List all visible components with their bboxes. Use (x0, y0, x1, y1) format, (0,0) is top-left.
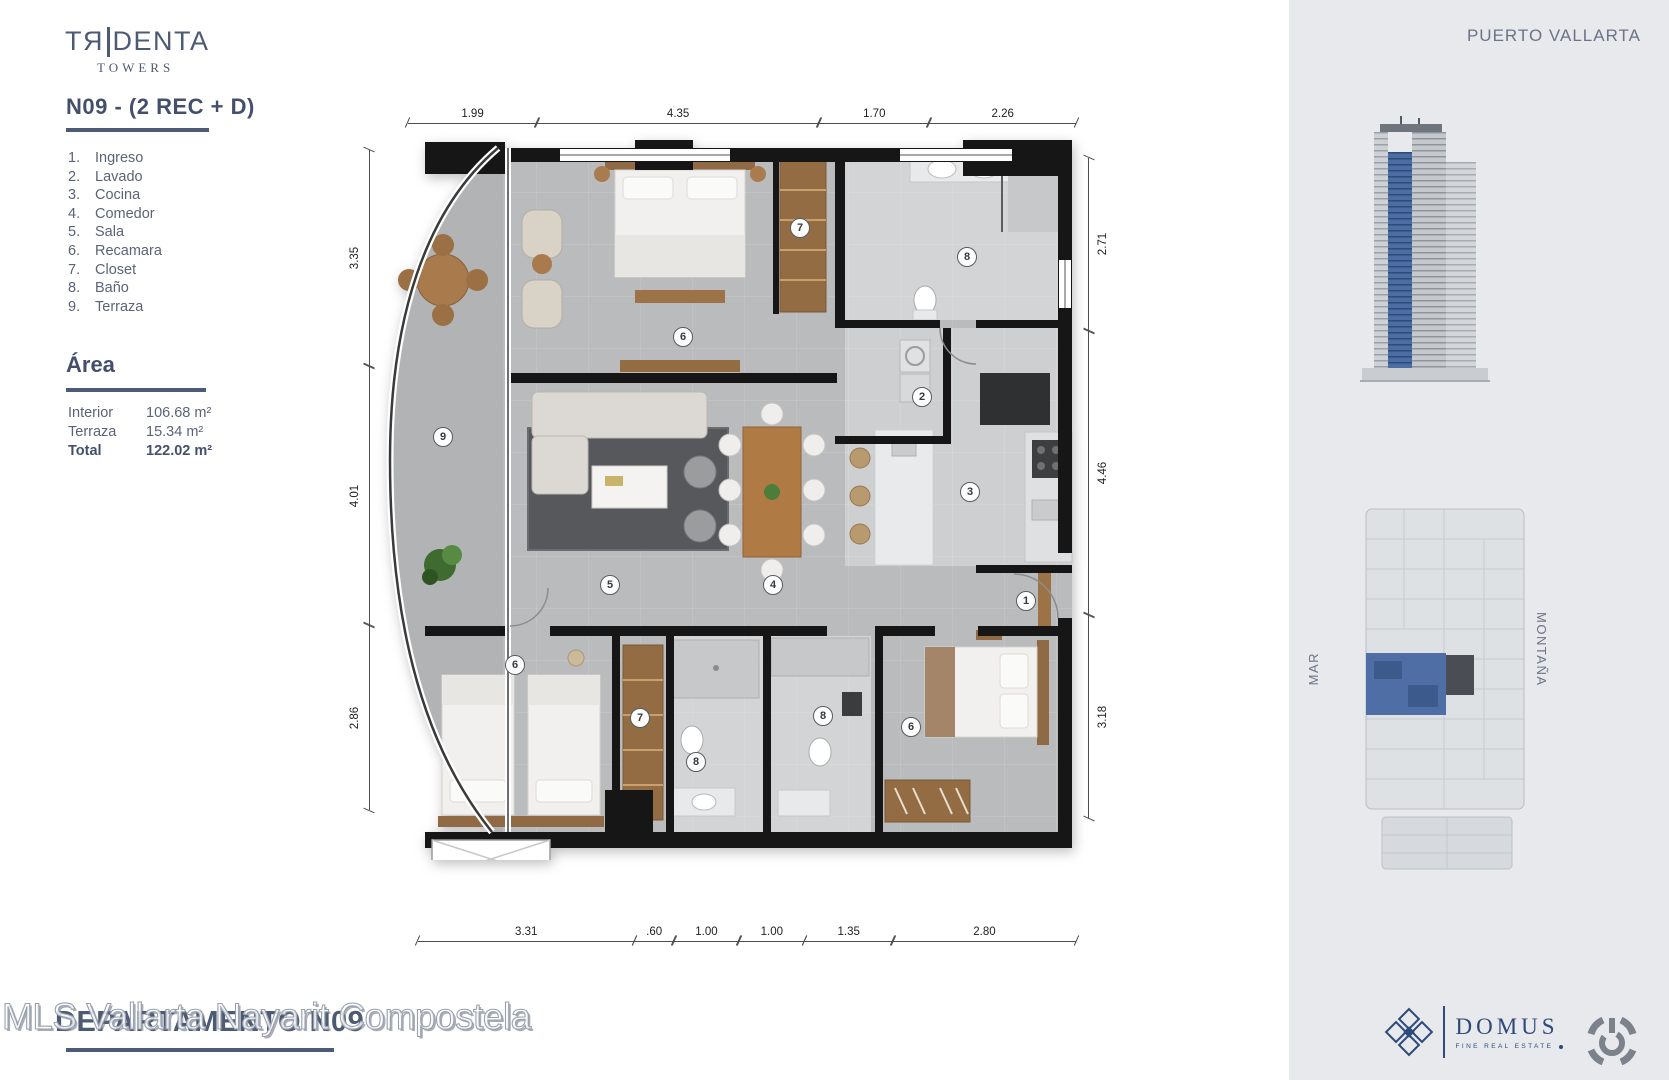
room-marker: 9 (433, 427, 453, 447)
tower-wing-right (1446, 162, 1476, 368)
area-row: Terraza15.34 m² (68, 423, 212, 442)
orientation-sea-label: MAR (1306, 652, 1321, 685)
dimension-segment: 2.26 (929, 106, 1076, 124)
dimension-segment: 1.70 (819, 106, 929, 124)
area-underline (66, 388, 206, 392)
room-marker: 8 (957, 247, 977, 267)
legend-item: 7.Closet (68, 261, 162, 280)
logo-part2: DENTA (113, 26, 210, 57)
dimensions-right: 2.714.463.18 (1088, 158, 1106, 818)
logo-subtitle: TOWERS (97, 60, 210, 76)
room-marker: 5 (600, 575, 620, 595)
room-marker: 1 (1016, 591, 1036, 611)
room-marker: 4 (763, 575, 783, 595)
domus-diamonds-icon (1384, 1007, 1434, 1057)
mls-watermark: MLS Vallarta Nayarit Compostela (2, 996, 531, 1038)
room-marker: 6 (673, 327, 693, 347)
room-marker: 2 (912, 387, 932, 407)
dimension-segment: 4.46 (1088, 331, 1106, 615)
area-heading: Área (66, 352, 115, 378)
area-row: Total122.02 m² (68, 442, 212, 461)
dimensions-bottom: 3.31.601.001.001.352.80 (418, 924, 1076, 942)
legend-item: 5.Sala (68, 223, 162, 242)
dimension-segment: 3.35 (352, 150, 370, 366)
dimensions-top: 1.994.351.702.26 (408, 106, 1076, 124)
room-marker: 7 (630, 708, 650, 728)
room-marker: 6 (901, 717, 921, 737)
ground-line (1360, 380, 1490, 382)
page-title: N09 - (2 REC + D) (66, 94, 255, 120)
room-marker: 6 (505, 655, 525, 675)
dimension-segment: 2.80 (893, 924, 1076, 942)
room-marker: 8 (686, 752, 706, 772)
room-marker: 8 (813, 706, 833, 726)
dimension-segment: 3.18 (1088, 615, 1106, 818)
area-row: Interior106.68 m² (68, 404, 212, 423)
dimension-segment: .60 (635, 924, 674, 942)
dimension-segment: 1.35 (805, 924, 893, 942)
logo-divider (1443, 1006, 1445, 1058)
area-table: Interior106.68 m²Terraza15.34 m²Total122… (68, 404, 212, 461)
orientation-mountain-label: MONTAÑA (1534, 612, 1549, 687)
dimension-segment: 1.00 (739, 924, 804, 942)
dimension-segment: 3.31 (418, 924, 635, 942)
domus-logo: DOMUS FINE REAL ESTATE (1384, 1006, 1563, 1058)
plan-markers: 96782354167886 (380, 140, 1080, 860)
legend-item: 4.Comedor (68, 205, 162, 224)
dimension-segment: 1.00 (674, 924, 739, 942)
legend-item: 8.Baño (68, 279, 162, 298)
dimension-segment: 2.86 (352, 625, 370, 810)
tridenta-logo: TЯ DENTA TOWERS (65, 26, 210, 76)
legend-item: 1.Ingreso (68, 149, 162, 168)
tower-podium (1362, 368, 1488, 380)
location-label: PUERTO VALLARTA (1467, 26, 1641, 46)
dot-icon (1559, 1045, 1563, 1049)
legend-item: 9.Terraza (68, 298, 162, 317)
legend-item: 2.Lavado (68, 168, 162, 187)
footer-underline (66, 1048, 334, 1052)
building-elevation (1360, 116, 1490, 394)
legend-list: 1.Ingreso2.Lavado3.Cocina4.Comedor5.Sala… (68, 149, 162, 316)
dimension-segment: 4.35 (537, 106, 819, 124)
dimension-segment: 2.71 (1088, 158, 1106, 331)
brochure-page: TЯ DENTA TOWERS N09 - (2 REC + D) 1.Ingr… (0, 0, 1669, 1080)
title-underline (66, 128, 209, 132)
tower-roof (1380, 124, 1442, 132)
floor-plate-keyplan (1352, 505, 1537, 875)
room-marker: 7 (790, 218, 810, 238)
room-marker: 3 (960, 482, 980, 502)
legend-item: 3.Cocina (68, 186, 162, 205)
logo-divider-icon (107, 27, 110, 57)
dimension-segment: 1.99 (408, 106, 537, 124)
domus-wordmark: DOMUS (1456, 1014, 1564, 1040)
legend-item: 6.Recamara (68, 242, 162, 261)
tower-highlight-column (1388, 152, 1412, 368)
dimensions-left: 3.354.012.86 (352, 150, 370, 810)
tower-wing-left (1374, 132, 1388, 368)
developer-emblem-icon (1583, 1010, 1641, 1068)
tower-body (1412, 132, 1446, 368)
logo-part1: TЯ (65, 26, 104, 57)
floor-plan: 96782354167886 (380, 140, 1080, 860)
dimension-segment: 4.01 (352, 366, 370, 625)
domus-tagline: FINE REAL ESTATE (1456, 1043, 1554, 1050)
